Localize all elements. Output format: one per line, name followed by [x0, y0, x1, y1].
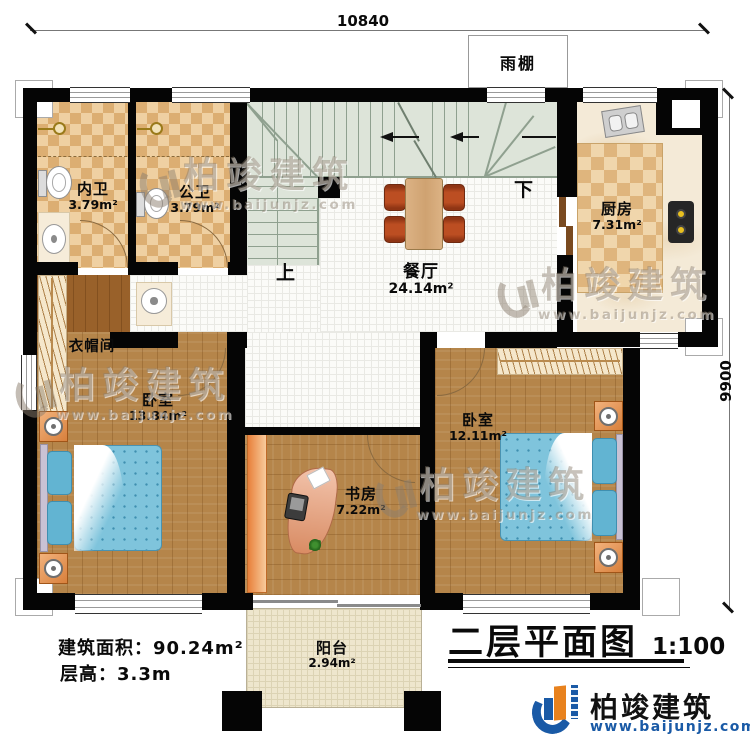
stair-tread-line: [248, 246, 318, 247]
stair-rail: [317, 198, 319, 265]
window: [463, 594, 590, 614]
wall: [545, 88, 583, 102]
room-label-cloakroom: 衣帽间: [61, 339, 123, 355]
corner-pier: [642, 578, 680, 616]
wall: [420, 332, 437, 348]
window: [70, 87, 130, 103]
wardrobe-rod: [500, 360, 620, 362]
window: [21, 355, 37, 410]
wall: [23, 593, 75, 610]
dining-table: [405, 178, 443, 250]
wall: [250, 88, 487, 102]
plant-icon: [309, 539, 321, 551]
dimension-tick: [25, 22, 37, 34]
wall: [227, 348, 245, 595]
stair-direction-line: [463, 136, 479, 138]
stair-direction-arrow: [450, 132, 463, 142]
dimension-tick: [722, 601, 734, 613]
wardrobe-rod: [51, 278, 53, 409]
room-label-dining: 餐厅 24.14m²: [371, 263, 471, 298]
window: [583, 87, 657, 103]
bed-headboard: [616, 434, 623, 540]
shower-partition: [137, 156, 229, 157]
flue-duct: [672, 100, 700, 128]
dimension-tick: [698, 22, 710, 34]
wall: [420, 593, 463, 610]
brand-logo: 柏竣建筑 www.baijunjz.com: [532, 680, 747, 740]
title-underline-thin: [448, 667, 690, 668]
computer-icon: [284, 492, 309, 521]
dining-chair: [384, 216, 406, 243]
washbasin-icon: [42, 224, 66, 254]
wall: [202, 593, 253, 610]
shower-head-icon: [150, 122, 163, 135]
stair-tread-line: [370, 102, 371, 177]
floor-height-note: 层高：3.3m: [60, 660, 172, 686]
stove-icon: [668, 201, 694, 243]
dining-chair: [443, 216, 465, 243]
stair-direction-arrow: [380, 132, 393, 142]
rain-canopy-label: 雨棚: [500, 50, 536, 74]
stair-direction-line: [393, 136, 419, 138]
air-conditioner-icon: [594, 401, 623, 431]
stair-tread-line: [322, 102, 323, 177]
room-label-balcony: 阳台 2.94m²: [292, 640, 372, 670]
stair-tread-line: [432, 102, 433, 177]
balcony-pier: [222, 691, 262, 731]
stair-tread-line: [286, 102, 287, 177]
bed-sheet: [74, 445, 124, 551]
pillow: [592, 438, 617, 484]
stair-tread-line: [346, 102, 347, 177]
wall: [130, 88, 172, 102]
wall: [245, 427, 420, 435]
brand-url: www.baijunjz.com: [590, 719, 750, 735]
wall: [702, 88, 718, 347]
room-label-bath-inner: 内卫 3.79m²: [53, 181, 133, 212]
pillow: [592, 490, 617, 536]
shower-partition: [38, 156, 127, 157]
room-label-bath-public: 公卫 3.79m²: [155, 184, 235, 215]
kitchen-sliding-door: [559, 197, 566, 227]
stair-tread-line: [468, 102, 469, 177]
stair-tread-line: [444, 102, 445, 177]
shower-head-icon: [53, 122, 66, 135]
wall: [230, 88, 247, 268]
stair-tread-line: [248, 234, 318, 235]
stair-tread-line: [394, 102, 395, 177]
air-conditioner-icon: [39, 411, 68, 442]
bookshelf: [247, 433, 267, 593]
dimension-line-top: [30, 30, 706, 31]
wall: [485, 332, 557, 348]
stair-down-label: 下: [514, 175, 533, 202]
stair-newel-wall: [318, 177, 340, 198]
wall: [557, 255, 573, 332]
brand-logo-icon: [532, 680, 586, 738]
wall: [623, 348, 640, 595]
stair-direction-line: [522, 136, 556, 138]
dimension-tick: [722, 87, 734, 99]
wall: [557, 102, 577, 197]
pillow: [47, 451, 72, 495]
drawing-scale: 1:100: [652, 634, 725, 660]
room-label-study: 书房 7.22m²: [321, 486, 401, 517]
balcony-pier: [404, 691, 441, 731]
wall: [128, 262, 178, 275]
room-label-bedroom-right: 卧室 12.11m²: [438, 412, 518, 443]
title-underline: [448, 659, 684, 663]
wall: [228, 262, 247, 275]
floor-area-note: 建筑面积：90.24m²: [58, 634, 244, 660]
pillow: [47, 501, 72, 545]
wall: [227, 332, 247, 348]
washbasin-icon: [141, 288, 167, 314]
staircase-left: [247, 177, 320, 265]
window: [640, 333, 678, 349]
stair-edge: [247, 176, 557, 178]
air-conditioner-icon: [594, 542, 623, 573]
window: [487, 87, 545, 103]
drawing-title-text: 二层平面图: [448, 614, 638, 665]
stair-tread-line: [310, 102, 311, 177]
wall: [678, 332, 718, 347]
stair-tread-line: [248, 186, 318, 187]
rain-canopy: 雨棚: [468, 35, 568, 88]
stair-tread-line: [262, 102, 263, 177]
kitchen-sliding-door: [566, 226, 573, 255]
dining-chair: [384, 184, 406, 211]
wall: [590, 593, 640, 610]
drawing-title: 二层平面图 1:100: [448, 614, 725, 665]
stair-tread-line: [248, 222, 318, 223]
window: [172, 87, 250, 103]
balcony-sliding-door: [253, 600, 338, 603]
wall: [23, 88, 37, 355]
corridor-floor: [245, 332, 420, 427]
stair-tread-line: [358, 102, 359, 177]
stair-tread-line: [248, 210, 318, 211]
window: [75, 594, 202, 614]
dimension-height-label: 9900: [717, 353, 735, 409]
balcony-sliding-door: [337, 604, 421, 607]
floor-plan: 10840 9900 雨棚 上 下: [0, 0, 750, 751]
stair-tread-line: [248, 198, 318, 199]
wall: [557, 332, 640, 347]
stair-up-label: 上: [276, 258, 295, 285]
bed-sheet: [544, 433, 592, 541]
stair-tread-line: [277, 140, 278, 265]
stair-tread-line: [334, 102, 335, 177]
room-label-bedroom-left: 卧室 13.84m²: [118, 392, 198, 423]
stair-tread-line: [298, 102, 299, 177]
dimension-width-label: 10840: [313, 12, 413, 30]
wall: [23, 410, 37, 607]
wall: [23, 262, 78, 275]
dining-chair: [443, 184, 465, 211]
air-conditioner-icon: [39, 553, 68, 584]
wall: [420, 332, 435, 595]
room-label-kitchen: 厨房 7.31m²: [577, 201, 657, 232]
